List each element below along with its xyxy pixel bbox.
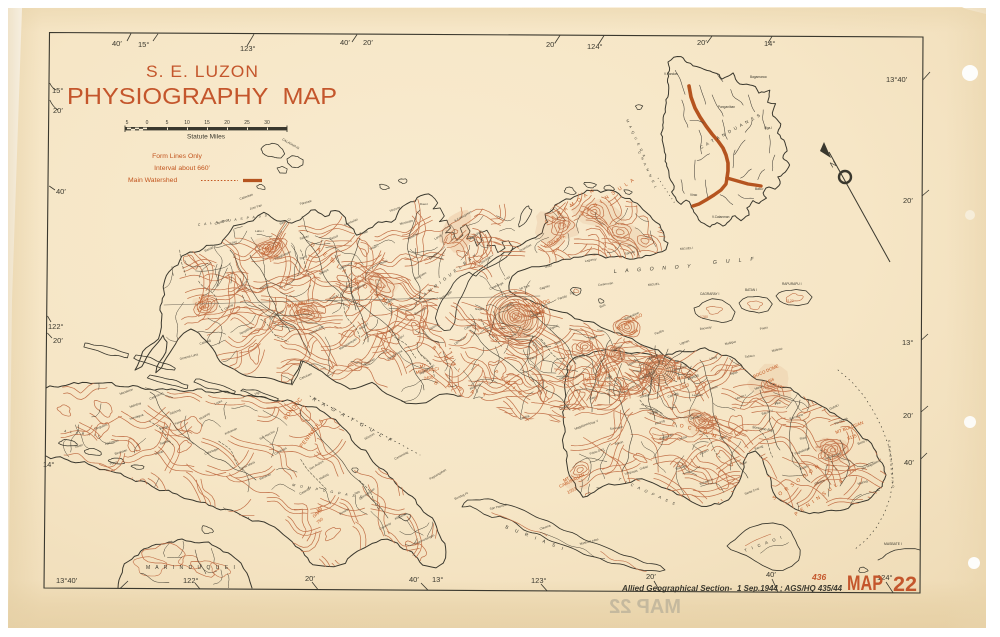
svg-text:40′: 40′: [766, 570, 776, 579]
svg-text:40′: 40′: [340, 38, 350, 47]
svg-text:MAP 22: MAP 22: [609, 596, 681, 618]
svg-text:PHYSIOGRAPHY MAP: PHYSIOGRAPHY MAP: [67, 83, 337, 109]
svg-text:Viga.l: Viga.l: [764, 126, 772, 130]
svg-text:Statute Miles: Statute Miles: [187, 134, 226, 141]
svg-text:0: 0: [146, 120, 149, 126]
svg-text:5: 5: [126, 120, 129, 126]
svg-text:15: 15: [204, 120, 210, 126]
svg-text:15°: 15°: [52, 86, 63, 95]
svg-text:40′: 40′: [112, 39, 122, 48]
svg-text:20′: 20′: [903, 411, 913, 420]
svg-text:20′: 20′: [903, 196, 913, 205]
svg-text:MASBATE I: MASBATE I: [884, 542, 902, 546]
svg-text:25: 25: [244, 120, 250, 126]
svg-text:20′: 20′: [305, 574, 315, 583]
svg-text:Legaspi: Legaspi: [692, 393, 703, 397]
svg-text:Naga.l: Naga.l: [475, 307, 484, 311]
svg-text:Bagamanoc: Bagamanoc: [750, 75, 767, 79]
svg-text:40′: 40′: [56, 187, 66, 196]
svg-text:Allied Geographical Section-: Allied Geographical Section-: [621, 584, 732, 593]
svg-text:22: 22: [893, 573, 917, 596]
svg-text:1 Sep.1944 ; AGS/HQ 435/44: 1 Sep.1944 ; AGS/HQ 435/44: [737, 584, 843, 593]
svg-text:Labo.l: Labo.l: [255, 229, 264, 233]
svg-text:V.Catanman: V.Catanman: [712, 215, 730, 219]
svg-text:13°: 13°: [432, 575, 443, 584]
svg-text:1120: 1120: [786, 299, 794, 303]
svg-text:124°: 124°: [587, 42, 603, 51]
svg-text:13°40′: 13°40′: [56, 576, 78, 585]
svg-text:M A R I N D U Q U E I: M A R I N D U Q U E I: [146, 565, 237, 571]
svg-text:20: 20: [224, 120, 230, 126]
svg-text:20′: 20′: [546, 40, 556, 49]
svg-text:40′: 40′: [904, 458, 914, 467]
svg-text:Daet.l: Daet.l: [420, 202, 428, 206]
svg-text:CAGRARAY I: CAGRARAY I: [700, 292, 719, 296]
svg-text:Interval about 660′: Interval about 660′: [154, 165, 210, 172]
svg-text:20′: 20′: [697, 38, 707, 47]
svg-text:Bato.r: Bato.r: [755, 187, 764, 191]
svg-text:20′: 20′: [646, 572, 656, 581]
svg-text:40′: 40′: [409, 575, 419, 584]
svg-text:Virac: Virac: [690, 193, 698, 197]
svg-text:436: 436: [811, 572, 826, 582]
svg-text:123°: 123°: [240, 44, 256, 53]
svg-text:Main Watershed: Main Watershed: [128, 177, 177, 184]
svg-text:V.Pandan: V.Pandan: [664, 72, 678, 76]
svg-text:15°: 15°: [138, 40, 149, 49]
svg-text:5: 5: [166, 120, 169, 126]
svg-text:122°: 122°: [48, 322, 64, 331]
svg-text:13°: 13°: [902, 338, 913, 347]
svg-text:20′: 20′: [53, 336, 63, 345]
svg-text:13°40′: 13°40′: [886, 75, 908, 84]
svg-text:10: 10: [184, 120, 190, 126]
svg-text:14°: 14°: [764, 39, 775, 48]
svg-text:Form Lines Only: Form Lines Only: [152, 153, 202, 160]
svg-text:20′: 20′: [363, 38, 373, 47]
svg-text:S. E. LUZON: S. E. LUZON: [146, 62, 259, 81]
svg-text:MAP: MAP: [847, 572, 883, 595]
svg-text:1280: 1280: [700, 315, 708, 319]
svg-text:123°: 123°: [531, 576, 547, 585]
svg-text:BATAN I: BATAN I: [745, 288, 757, 292]
svg-text:Panganiban: Panganiban: [718, 105, 735, 109]
svg-text:RAPURAPU I: RAPURAPU I: [782, 282, 802, 286]
svg-text:122°: 122°: [183, 576, 199, 585]
svg-text:30: 30: [264, 120, 270, 126]
svg-text:14°: 14°: [43, 460, 54, 469]
